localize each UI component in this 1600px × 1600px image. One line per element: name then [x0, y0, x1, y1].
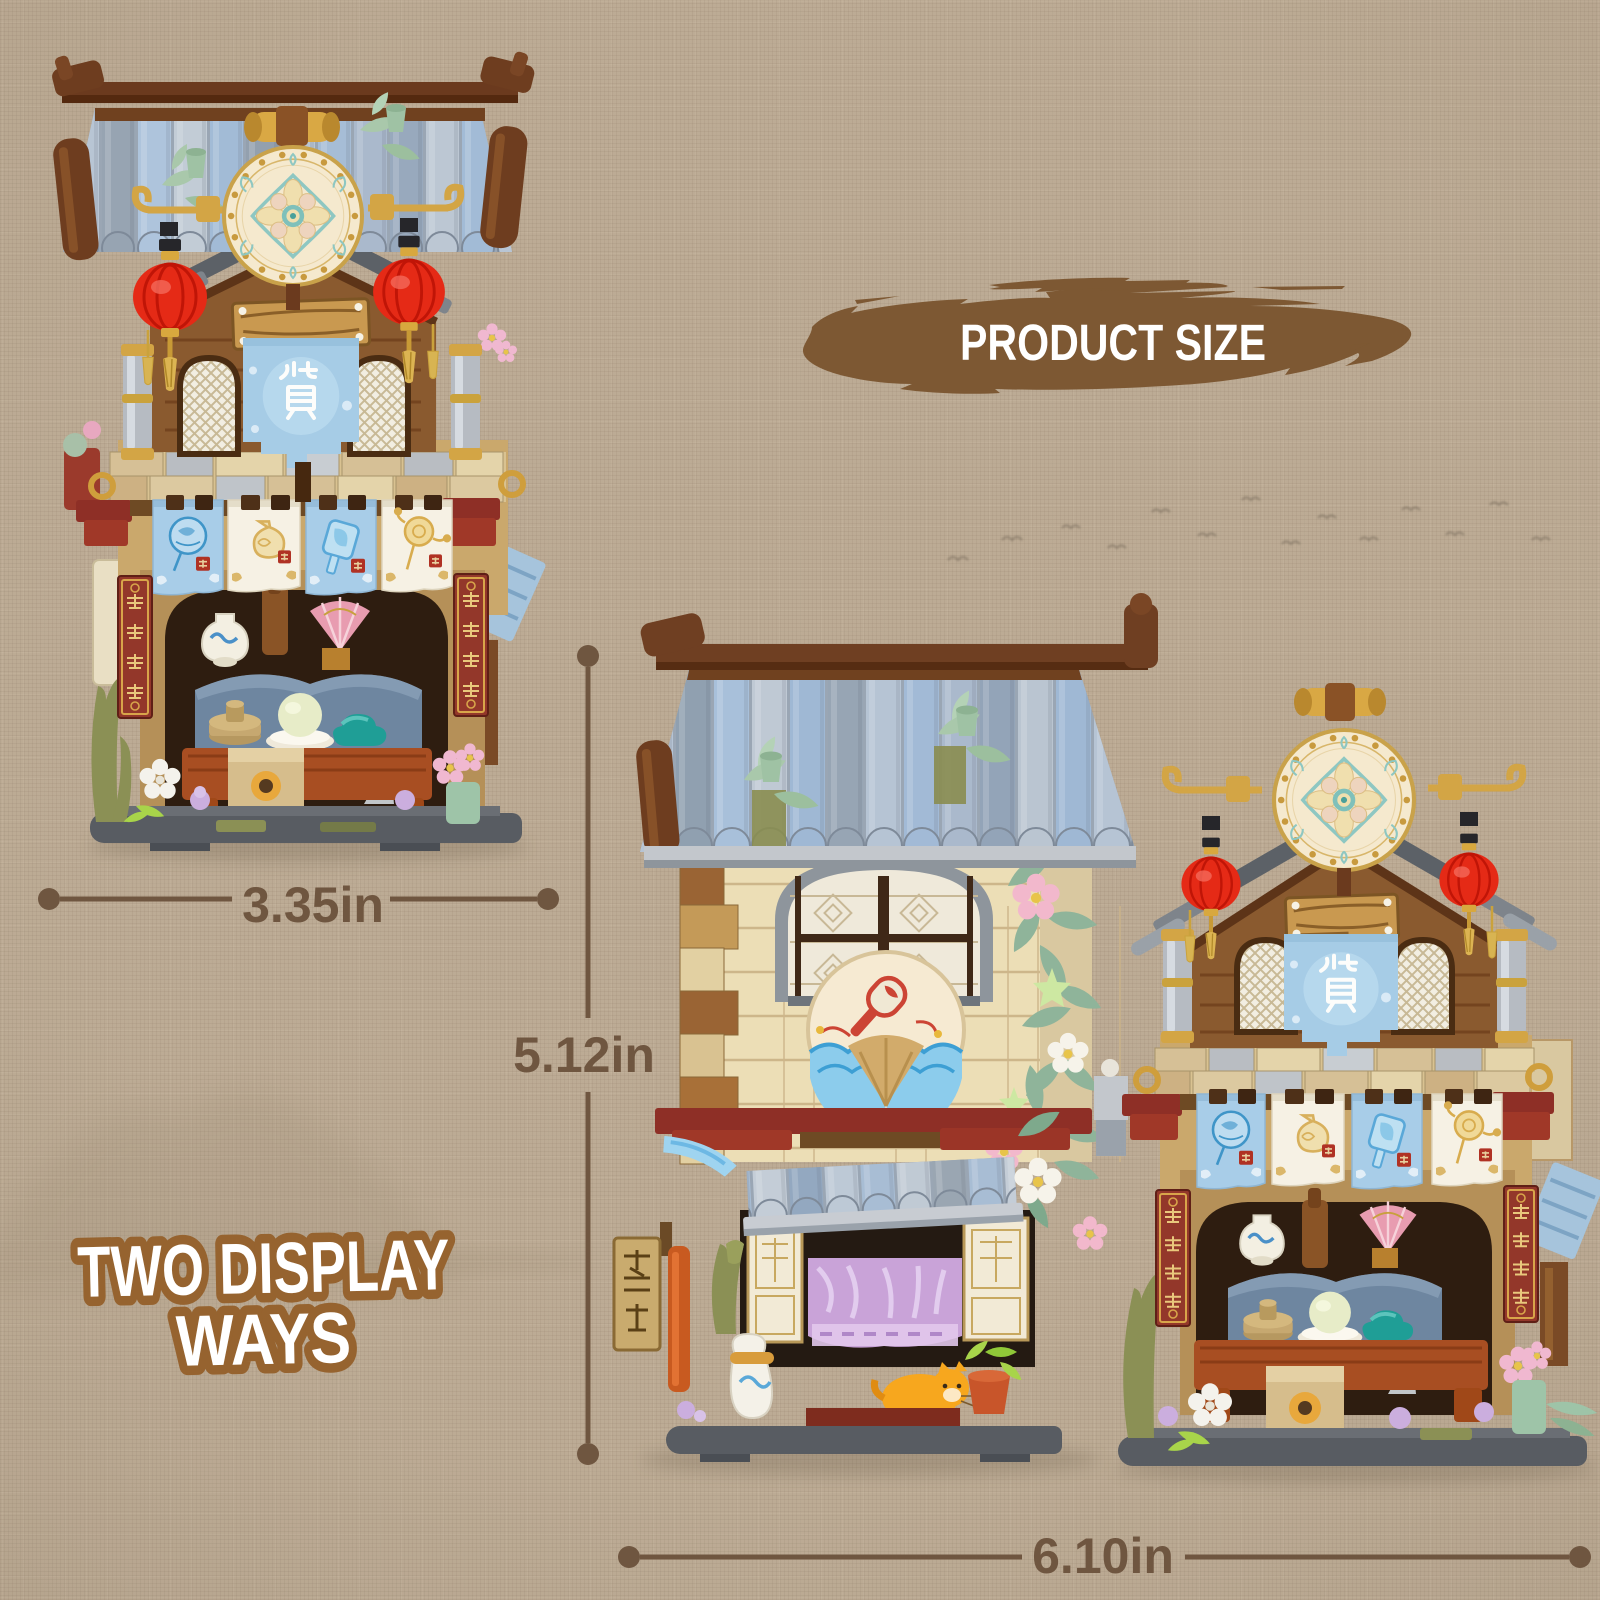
svg-text:3.35in: 3.35in — [242, 877, 384, 933]
svg-text:5.12in: 5.12in — [513, 1027, 655, 1083]
svg-text:WAYS: WAYS — [175, 1298, 352, 1382]
svg-text:6.10in: 6.10in — [1032, 1528, 1174, 1584]
svg-text:PRODUCT SIZE: PRODUCT SIZE — [960, 314, 1266, 371]
